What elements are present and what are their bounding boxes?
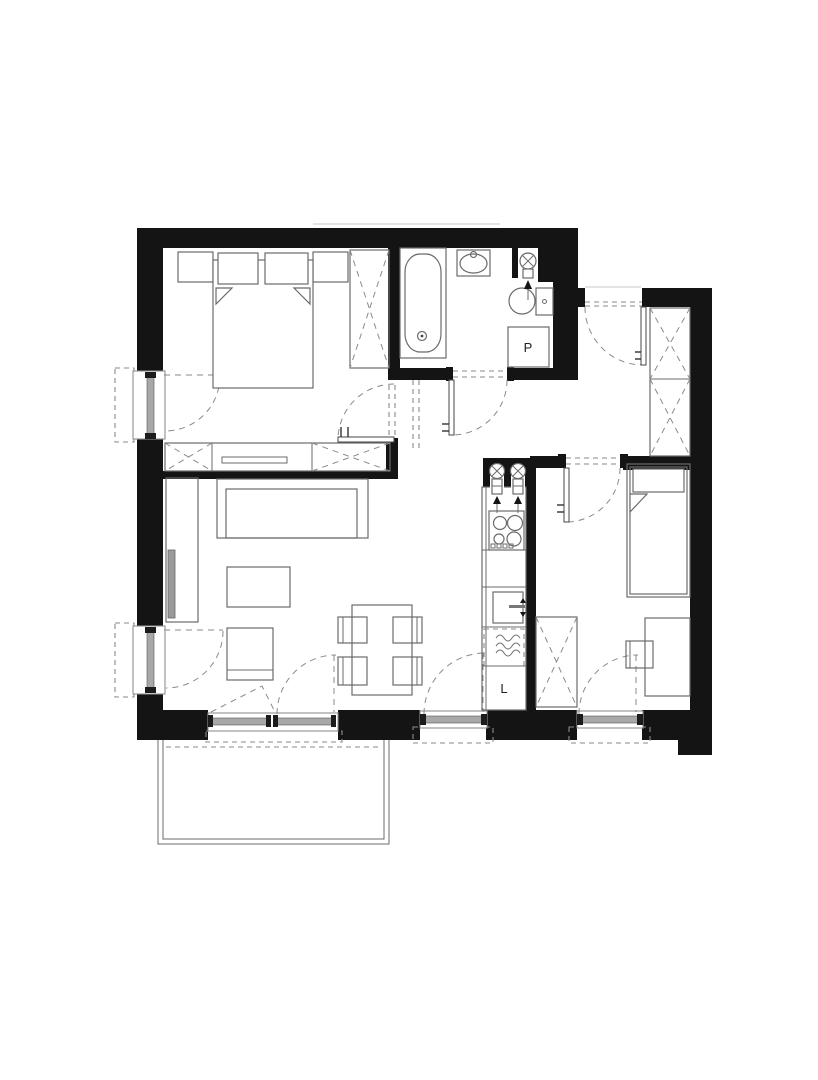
balcony-door-swing-arc bbox=[277, 655, 336, 714]
window-cap bbox=[145, 372, 156, 378]
windows bbox=[115, 368, 650, 743]
valve-base bbox=[523, 269, 533, 278]
dining-table bbox=[352, 605, 412, 695]
balcony-door-glazing bbox=[211, 718, 270, 725]
balcony-door-glazing bbox=[276, 718, 335, 725]
balcony-railing-outer bbox=[158, 740, 389, 844]
wave-line bbox=[496, 643, 520, 649]
cooktop-knob bbox=[503, 544, 507, 548]
wave-line bbox=[496, 650, 520, 656]
dining-chair bbox=[393, 617, 422, 643]
wardrobe-row bbox=[165, 443, 390, 471]
balcony bbox=[158, 740, 389, 844]
wall-segment bbox=[642, 710, 694, 740]
wave-line bbox=[496, 635, 520, 641]
window-sill bbox=[413, 727, 493, 743]
window-sill bbox=[569, 727, 650, 743]
hallway-furniture bbox=[650, 308, 690, 456]
supply-arrow bbox=[493, 496, 501, 504]
floor-plan-page: P bbox=[0, 0, 818, 1080]
toilet-tank bbox=[536, 288, 553, 315]
wall-segment bbox=[508, 368, 578, 380]
window-glazing bbox=[147, 374, 154, 436]
window-cap bbox=[208, 715, 213, 727]
sofa bbox=[217, 479, 368, 538]
wall-segment bbox=[538, 248, 553, 282]
sofa-seat bbox=[226, 489, 357, 538]
nightstand bbox=[313, 252, 348, 282]
sink-faucet bbox=[509, 605, 525, 608]
armchair bbox=[227, 628, 273, 680]
window-swing-arc bbox=[166, 631, 223, 688]
shelf-bar bbox=[222, 457, 287, 463]
desk bbox=[645, 618, 690, 696]
bedroom2-door-leaf bbox=[564, 468, 569, 522]
wall-segment bbox=[623, 456, 697, 470]
window-swing-arc bbox=[579, 655, 638, 714]
bathroom-door-leaf bbox=[449, 380, 454, 435]
tv-screen bbox=[168, 550, 175, 618]
balcony-door-sill bbox=[206, 731, 342, 742]
wardrobe-cross bbox=[350, 250, 389, 368]
tall-wardrobe bbox=[350, 250, 389, 368]
balcony-door-tilt-lines bbox=[211, 686, 274, 712]
pillow bbox=[633, 469, 684, 492]
window-cap bbox=[331, 715, 336, 727]
wall-segment bbox=[338, 710, 420, 740]
window-glazing bbox=[147, 629, 154, 691]
burner bbox=[508, 516, 523, 531]
pillow bbox=[265, 253, 308, 284]
floor-plan-drawing: P bbox=[0, 0, 818, 1080]
window-cap bbox=[420, 714, 426, 725]
nightstand bbox=[178, 252, 213, 282]
bedroom1-door-swing-arc bbox=[338, 384, 394, 440]
window-cap bbox=[637, 714, 643, 725]
fridge-label: L bbox=[500, 681, 507, 696]
washbasin bbox=[460, 254, 487, 273]
kitchenette: L bbox=[482, 464, 526, 711]
window-sill bbox=[115, 368, 134, 442]
wall-segment bbox=[642, 288, 712, 307]
hall-wardrobe bbox=[650, 308, 690, 456]
bathroom-door-swing-arc bbox=[452, 380, 507, 435]
cooktop-knob bbox=[491, 544, 495, 548]
wall-segment bbox=[137, 694, 163, 740]
supply-arrow bbox=[514, 496, 522, 504]
window-cap bbox=[145, 433, 156, 439]
door-jamb bbox=[446, 367, 453, 381]
window-cap bbox=[145, 627, 156, 633]
wardrobe-cross bbox=[350, 250, 389, 368]
bedroom1-door-leaf bbox=[338, 437, 394, 442]
wall-segment bbox=[137, 439, 163, 626]
wall-segment bbox=[137, 248, 163, 371]
wall-segment bbox=[690, 288, 712, 740]
pillow bbox=[218, 253, 258, 284]
living-room-furniture bbox=[166, 478, 422, 695]
bathroom-fixtures: P bbox=[400, 248, 553, 367]
burner bbox=[494, 517, 507, 530]
blanket-fold bbox=[630, 494, 647, 512]
dishwasher bbox=[484, 629, 524, 666]
burner bbox=[494, 534, 504, 544]
window-swing-arc bbox=[424, 653, 485, 714]
bedroom1-furniture bbox=[178, 250, 389, 388]
coffee-table bbox=[227, 567, 290, 607]
wall-segment bbox=[526, 465, 536, 710]
window-cap bbox=[145, 687, 156, 693]
window-glazing bbox=[423, 716, 484, 723]
wall-segment bbox=[163, 710, 208, 740]
window-cap bbox=[273, 715, 278, 727]
wall-segment bbox=[553, 248, 578, 380]
window-sill bbox=[115, 623, 134, 697]
toilet-bowl bbox=[509, 288, 535, 314]
balcony-railing-inner bbox=[163, 740, 384, 839]
wall-segment bbox=[486, 710, 577, 740]
entrance-door-leaf bbox=[641, 307, 646, 365]
bedroom2-furniture bbox=[536, 464, 690, 707]
window-cap bbox=[577, 714, 583, 725]
window-glazing bbox=[580, 716, 640, 723]
entrance-door-swing-arc bbox=[585, 307, 643, 365]
window-cap bbox=[481, 714, 487, 725]
faucet-arrow-up bbox=[520, 598, 526, 603]
bedroom2-door-swing-arc bbox=[566, 468, 620, 522]
wall-segment bbox=[400, 368, 452, 380]
toilet-arrow bbox=[524, 280, 532, 289]
door-jamb bbox=[507, 367, 514, 381]
washing-machine-label: P bbox=[524, 340, 533, 355]
bathtub-basin bbox=[405, 254, 441, 352]
door-jamb bbox=[558, 454, 566, 468]
wall-segment bbox=[512, 248, 518, 278]
window-swing-arc bbox=[165, 376, 220, 431]
bathtub-drain-dot bbox=[421, 335, 424, 338]
wall-segment bbox=[388, 248, 400, 380]
dining-chair bbox=[393, 657, 422, 685]
window-cap bbox=[266, 715, 271, 727]
faucet-arrow-down bbox=[520, 612, 526, 617]
wall-segment bbox=[137, 228, 578, 248]
